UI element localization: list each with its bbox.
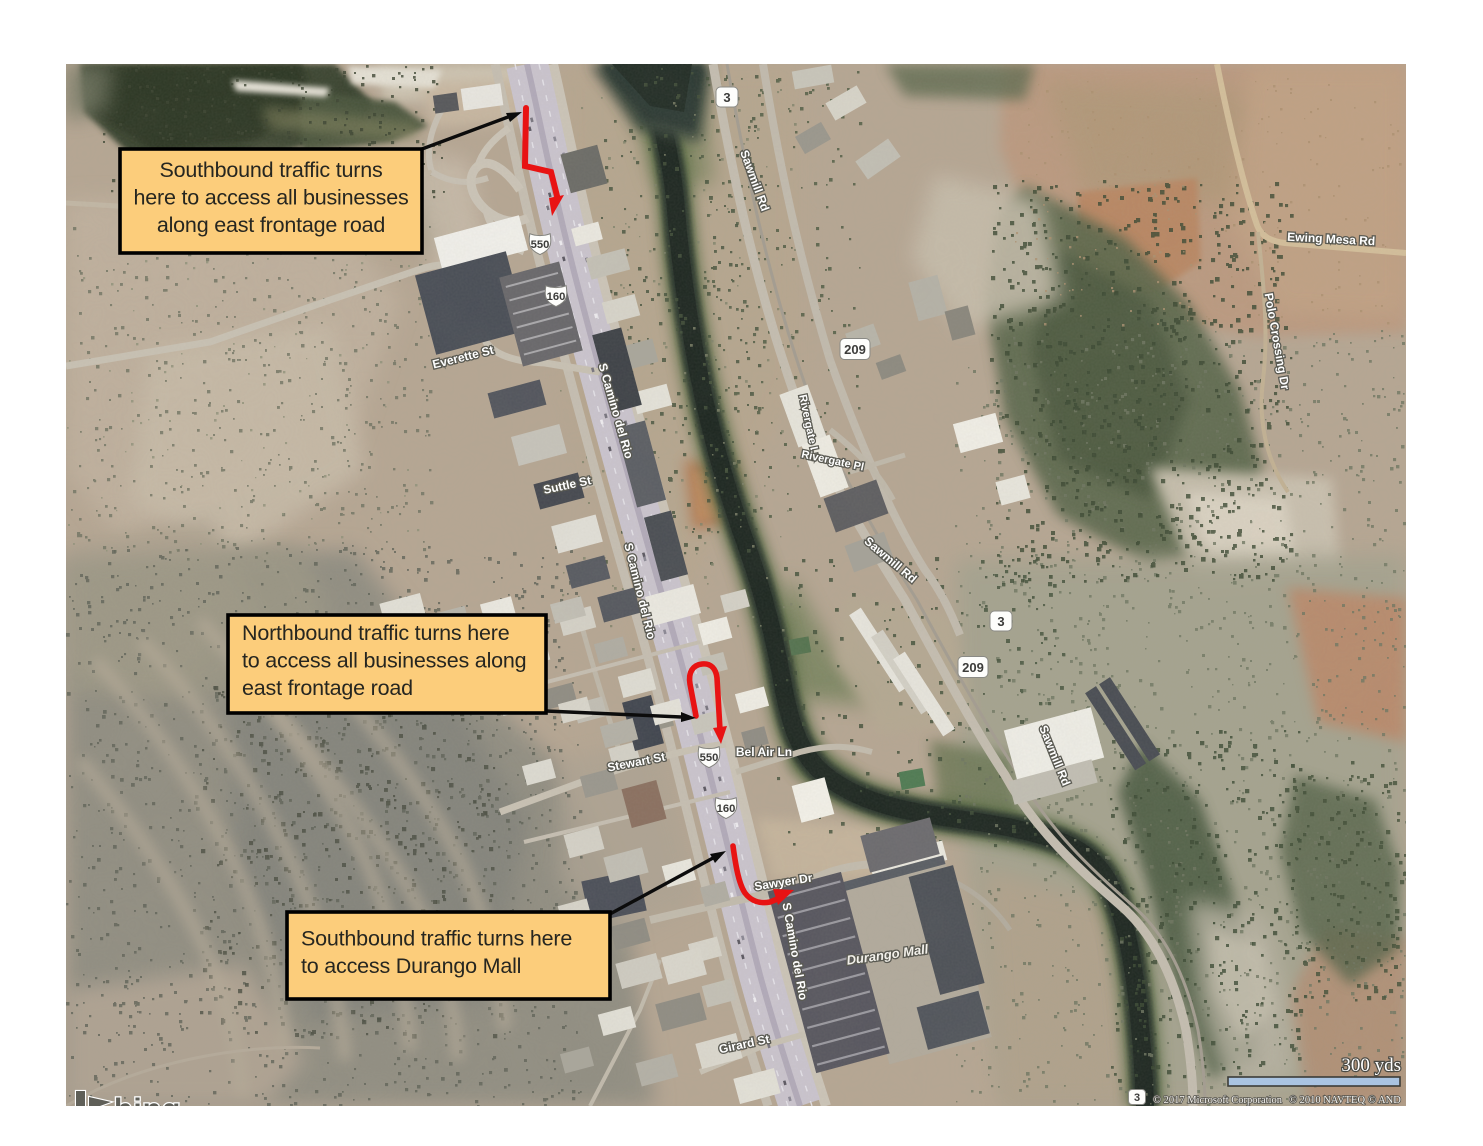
svg-text:© AND: © AND [1368, 1095, 1401, 1106]
svg-text:160: 160 [547, 291, 566, 303]
svg-text:3: 3 [1134, 1092, 1140, 1104]
svg-text:along east frontage road: along east frontage road [157, 213, 385, 237]
svg-text:east frontage road: east frontage road [242, 676, 413, 700]
svg-text:209: 209 [844, 342, 866, 357]
svg-text:Bel Air Ln: Bel Air Ln [736, 745, 792, 759]
svg-text:Southbound traffic turns here: Southbound traffic turns here [301, 926, 572, 950]
svg-text:550: 550 [700, 752, 719, 764]
svg-text:here to access all businesses: here to access all businesses [133, 186, 408, 210]
svg-text:to access all businesses along: to access all businesses along [242, 649, 526, 673]
svg-text:3: 3 [997, 614, 1004, 629]
svg-text:Southbound traffic turns: Southbound traffic turns [159, 158, 382, 182]
svg-text:160: 160 [717, 803, 736, 815]
svg-text:© 2017 Microsoft Corporation: © 2017 Microsoft Corporation [1153, 1095, 1283, 1106]
svg-text:300 yds: 300 yds [1341, 1055, 1401, 1076]
svg-text:© 2010 NAVTEQ: © 2010 NAVTEQ [1289, 1095, 1365, 1106]
svg-text:209: 209 [962, 660, 984, 675]
svg-text:550: 550 [531, 239, 550, 251]
svg-text:to access Durango Mall: to access Durango Mall [301, 954, 521, 978]
svg-text:3: 3 [723, 90, 730, 105]
svg-text:Northbound traffic turns here: Northbound traffic turns here [242, 621, 510, 645]
